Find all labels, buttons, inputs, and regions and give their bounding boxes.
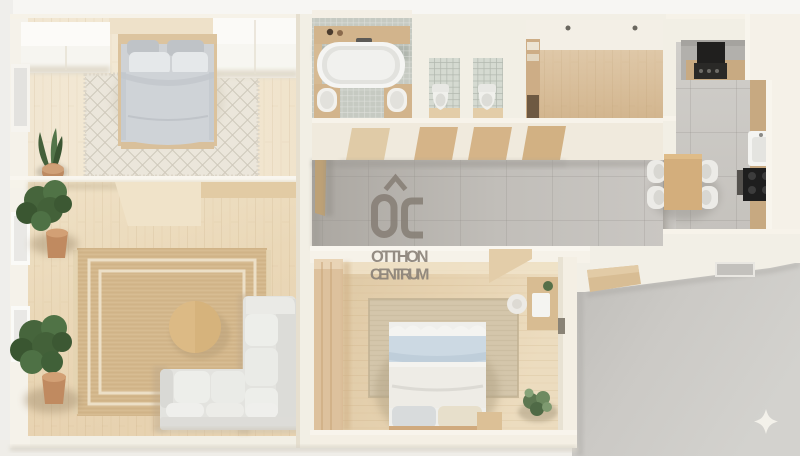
svg-text:CENTRUM: CENTRUM: [370, 267, 430, 284]
svg-text:OTTHON: OTTHON: [371, 248, 429, 266]
